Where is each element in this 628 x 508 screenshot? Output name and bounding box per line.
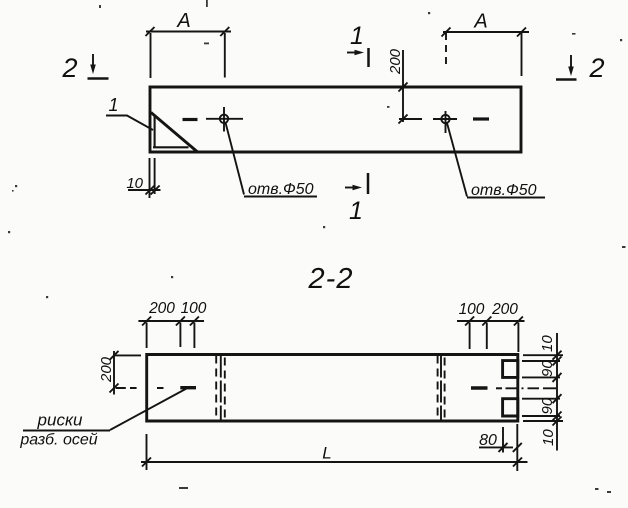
- svg-text:10: 10: [540, 429, 557, 446]
- svg-text:10: 10: [539, 335, 556, 352]
- svg-text:отв.Ф50: отв.Ф50: [248, 181, 314, 198]
- svg-text:2: 2: [61, 53, 77, 83]
- svg-text:200: 200: [148, 300, 175, 317]
- svg-text:200: 200: [98, 356, 115, 383]
- svg-text:1: 1: [350, 22, 364, 50]
- svg-text:1: 1: [349, 197, 363, 225]
- svg-text:L: L: [322, 444, 331, 463]
- svg-text:100: 100: [181, 300, 207, 317]
- svg-text:1: 1: [108, 95, 118, 115]
- svg-text:риски: риски: [37, 411, 83, 430]
- svg-text:200: 200: [491, 301, 518, 318]
- svg-text:А: А: [176, 10, 190, 32]
- svg-text:2-2: 2-2: [308, 263, 354, 295]
- svg-text:2: 2: [588, 53, 604, 83]
- svg-text:100: 100: [459, 301, 485, 318]
- svg-text:200: 200: [387, 48, 404, 75]
- svg-text:90: 90: [539, 397, 556, 414]
- svg-text:отв.Ф50: отв.Ф50: [471, 182, 537, 199]
- svg-text:А: А: [473, 11, 487, 33]
- svg-text:разб. осей: разб. осей: [19, 432, 97, 449]
- svg-text:90: 90: [539, 360, 556, 377]
- svg-text:10: 10: [126, 175, 143, 192]
